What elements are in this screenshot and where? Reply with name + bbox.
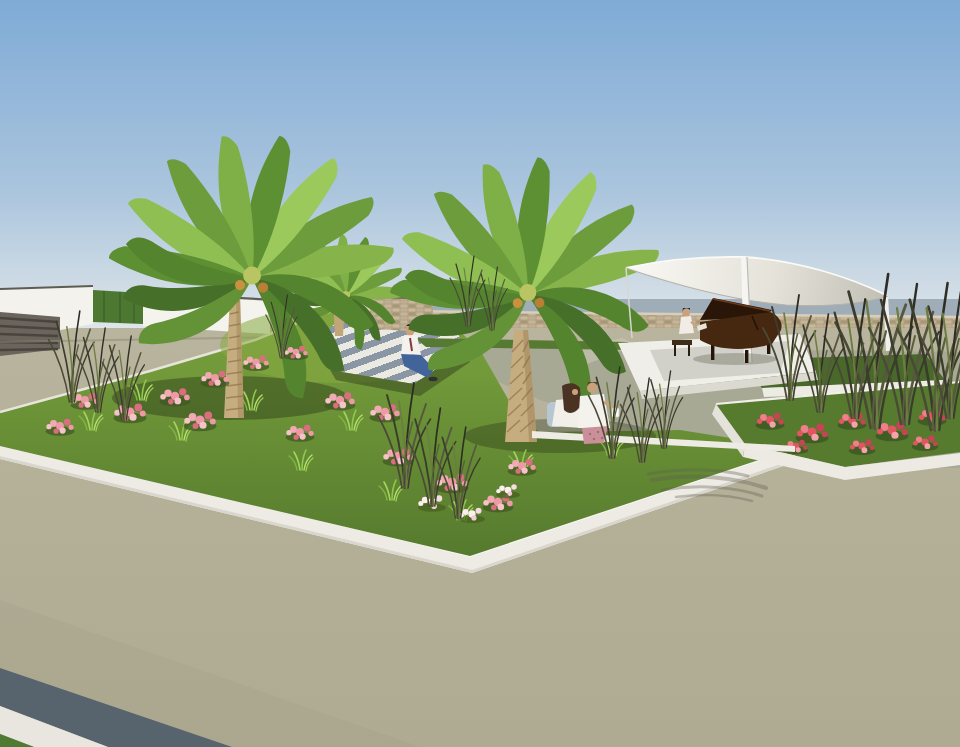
woman-hair [562,383,581,413]
amphitheater-steps [0,312,60,356]
shoe [429,377,438,381]
scene-canvas [0,0,960,747]
render-viewport [0,0,960,747]
piano-shadow [693,353,777,365]
